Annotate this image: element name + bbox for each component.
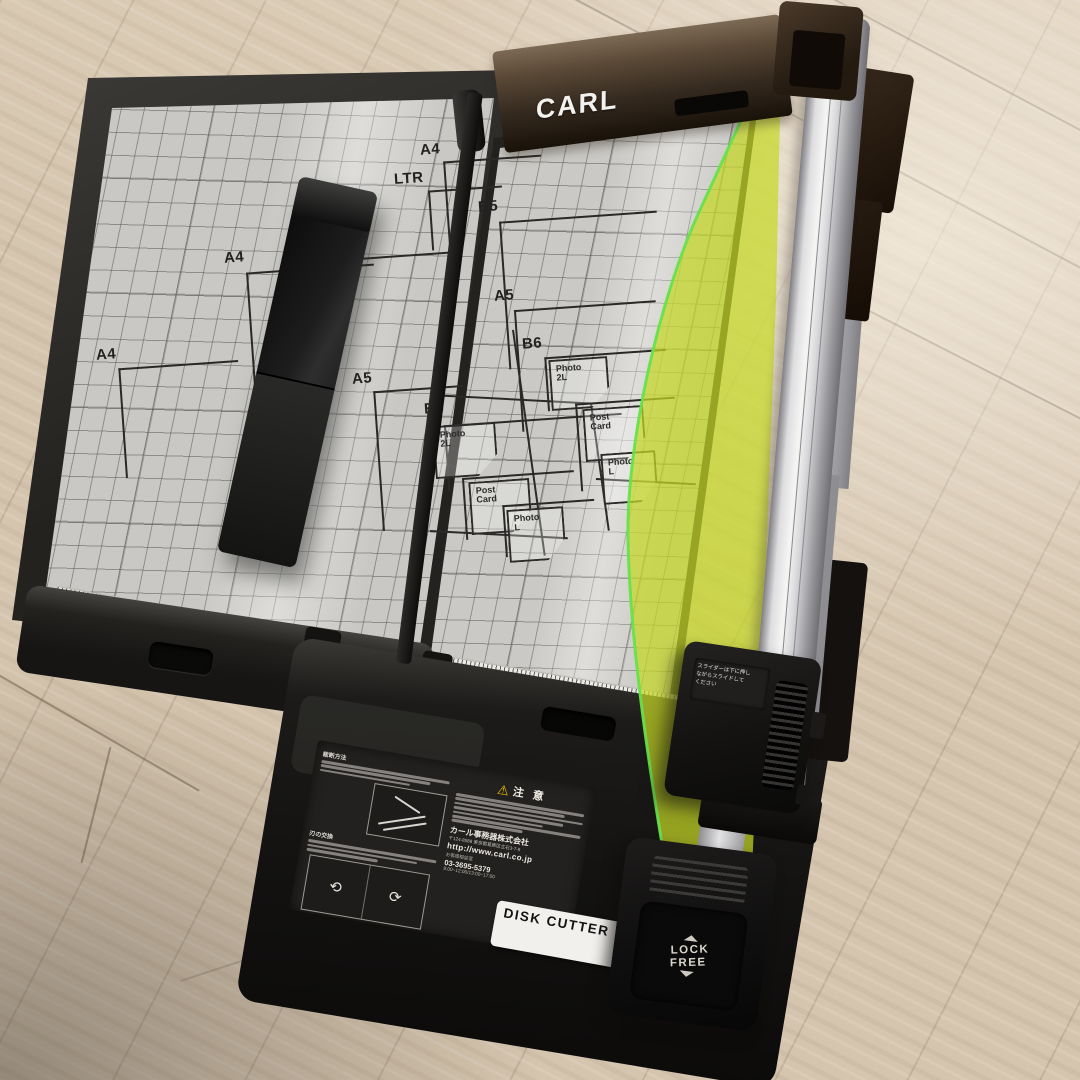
- diagram-line: [383, 823, 427, 831]
- caution-title: 注 意: [512, 783, 548, 804]
- rail-top-cap: [772, 1, 864, 102]
- knob-label-pad: ▲ LOCK FREE ▼: [629, 900, 749, 1011]
- size-label-a5-board: A5: [351, 369, 372, 387]
- clamp-bar-slot: [674, 90, 750, 117]
- slider-instruction-label: スライダーは下に押し ながらスライドして ください: [689, 658, 770, 711]
- size-label-a4-board-left: A4: [95, 345, 116, 363]
- size-label-b5: B5: [477, 197, 498, 215]
- lock-label: LOCK: [670, 943, 709, 956]
- page-icon-text: Card: [590, 420, 641, 433]
- size-bracket-a4-board-left: [118, 360, 245, 478]
- diagram-arrow: ⟲: [302, 855, 371, 918]
- base-handle-slot: [540, 706, 617, 742]
- diagram-arrow: ⟳: [361, 865, 429, 928]
- free-down-arrow-icon: ▼: [674, 968, 699, 980]
- diagram-line: [394, 796, 420, 814]
- brand-logo: CARL: [536, 84, 619, 126]
- latch-slot: [147, 641, 214, 676]
- warning-triangle-icon: ⚠: [496, 782, 510, 797]
- lock-free-knob: ▲ LOCK FREE ▼: [605, 836, 779, 1032]
- slider-grip-ribs: [761, 680, 809, 792]
- blade-slider: スライダーは下に押し ながらスライドして ください: [663, 640, 823, 815]
- size-label-a4-board: A4: [223, 248, 244, 266]
- instruction-left-column: 裁断方法 刃の交換 ⟲ ⟳: [298, 749, 452, 924]
- size-label-a5: A5: [493, 286, 514, 304]
- page-icon-text: 2L: [556, 371, 605, 384]
- size-label-b6-right: B6: [521, 334, 542, 352]
- photo-scene: A4 LTR B5 A5 B6 Photo 2L B6 Photo 2L Pos…: [0, 0, 1080, 1080]
- usage-diagram: [366, 783, 448, 847]
- knob-grip-ridges: [648, 854, 749, 908]
- lock-up-arrow-icon: ▲: [679, 932, 704, 944]
- size-label-ltr-top: LTR: [393, 169, 424, 188]
- size-label-a4-top: A4: [419, 140, 440, 158]
- rail-top-cap-inset: [789, 30, 846, 90]
